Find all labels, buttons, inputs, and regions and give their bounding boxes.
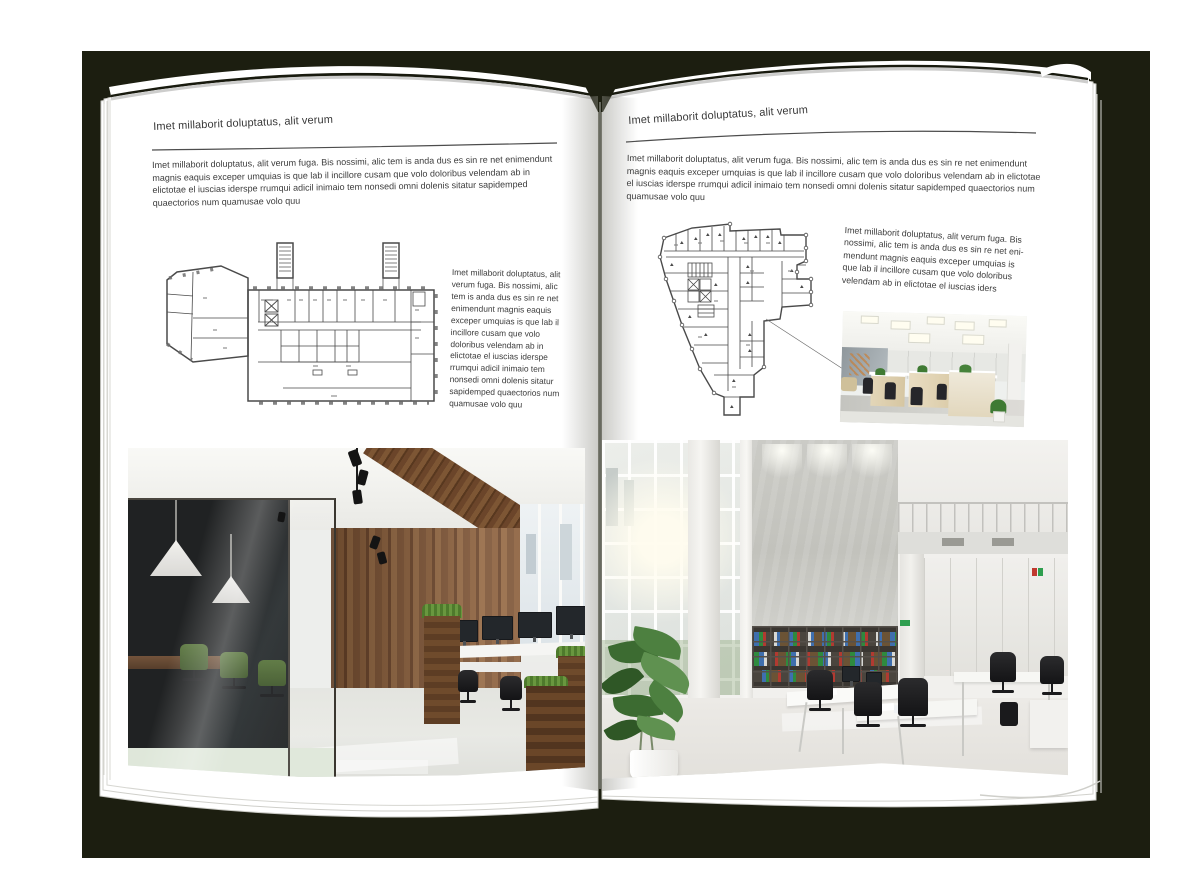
plan-outline — [660, 224, 811, 415]
wood-desk-cabinet — [948, 370, 995, 417]
left-page-title: Imet millaborit doluptatus, alit verum — [153, 114, 333, 133]
ceiling-spotlight — [352, 489, 363, 504]
lounge-seat — [841, 377, 857, 391]
waste-bin — [1000, 702, 1018, 726]
ceiling-light-panel — [955, 321, 975, 331]
black-office-chair — [937, 384, 947, 400]
interior-walls — [167, 272, 434, 401]
desk-plant — [917, 365, 927, 372]
wall-spotlight-glow — [762, 444, 802, 488]
black-office-chair — [863, 378, 873, 394]
desk-leg — [962, 716, 964, 756]
desk-plant — [875, 368, 885, 375]
ceiling-light-panel — [927, 316, 945, 324]
black-office-chair — [500, 676, 522, 700]
first-aid-sign — [1032, 568, 1037, 576]
desk-plant — [959, 364, 971, 372]
vent-grille — [992, 538, 1014, 546]
right-office-photo — [602, 440, 1068, 782]
desktop-monitor — [556, 606, 585, 635]
wall-spotlight-glow — [807, 444, 847, 488]
plant-pot — [993, 411, 1005, 422]
right-floorplan — [654, 221, 844, 417]
magazine-spread-mockup: Imet millaborit doluptatus, alit verum I… — [0, 0, 1200, 891]
black-mesh-chair — [990, 652, 1016, 682]
stair-behind-glass — [849, 353, 870, 376]
wood-planter-box — [424, 616, 460, 724]
black-mesh-chair — [854, 682, 882, 716]
desk-leg — [962, 682, 964, 716]
desktop-monitor — [842, 666, 860, 682]
wall-spotlight-glow — [852, 444, 892, 488]
wood-credenza — [526, 686, 585, 777]
left-floorplan — [163, 238, 439, 406]
low-cabinet — [1030, 700, 1068, 748]
right-small-office-photo — [840, 311, 1027, 427]
black-mesh-chair — [1040, 656, 1064, 684]
black-mesh-chair — [807, 670, 833, 700]
right-page-title: Imet millaborit doluptatus, alit verum — [628, 104, 808, 127]
exit-sign — [900, 620, 910, 626]
concrete-wall — [752, 440, 898, 626]
left-page-side-text: Imet millaborit doluptatus, alit verum f… — [449, 267, 564, 412]
black-office-chair — [910, 387, 922, 405]
black-mesh-chair — [898, 678, 928, 716]
desktop-monitor — [482, 616, 513, 640]
desk-leg — [842, 708, 844, 754]
vent-triangles — [670, 233, 804, 408]
desktop-monitor — [518, 612, 552, 638]
vent-grille — [942, 538, 964, 546]
white-column — [1007, 344, 1023, 402]
indoor-plant — [602, 630, 702, 782]
window-ticks — [167, 268, 436, 403]
right-page-side-text: Imet millaborit doluptatus, alit verum f… — [842, 224, 1031, 297]
black-office-chair — [458, 670, 478, 692]
left-page-intro: Imet millaborit doluptatus, alit verum f… — [152, 153, 565, 210]
stair-hatch — [277, 247, 399, 290]
interior-walls — [664, 226, 811, 397]
sun-flare — [602, 440, 752, 660]
plant-pot — [630, 750, 678, 780]
ceiling-light-panel — [891, 320, 911, 330]
exit-sign — [1038, 568, 1043, 576]
glass-pane-reflection — [128, 498, 336, 777]
ceiling-light-panel — [962, 334, 984, 345]
annotation-line — [766, 319, 843, 369]
under-balcony — [898, 532, 1068, 554]
column-bumps — [658, 222, 813, 395]
balcony-railing — [898, 502, 1068, 534]
right-page-intro: Imet millaborit doluptatus, alit verum f… — [626, 152, 1041, 208]
ceiling-light-panel — [908, 333, 930, 344]
ceiling-light-panel — [989, 319, 1007, 327]
glass-meeting-room — [128, 498, 334, 777]
black-office-chair — [885, 382, 896, 399]
room-number-marks — [203, 298, 419, 396]
left-office-photo — [128, 448, 585, 777]
ceiling-light-panel — [861, 316, 879, 324]
city-silhouette — [560, 524, 572, 580]
city-silhouette — [526, 534, 536, 574]
